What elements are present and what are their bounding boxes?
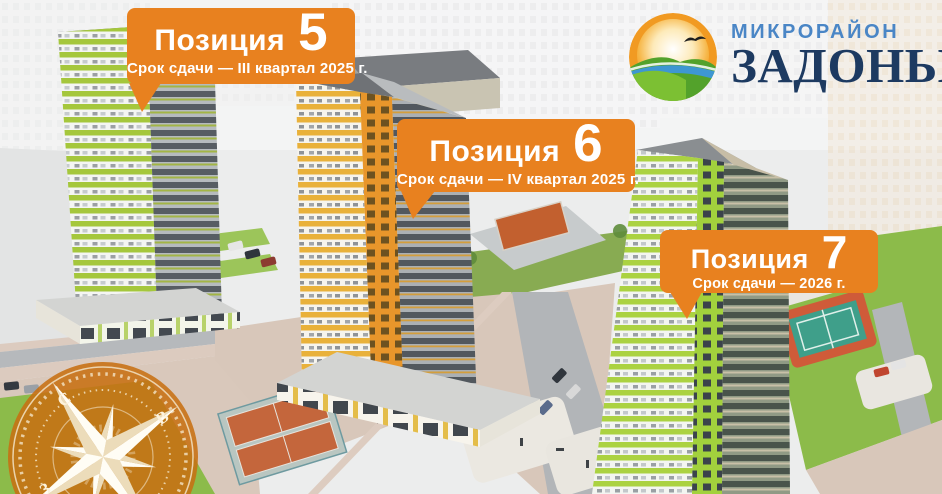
callout-position-6: Позиция 6 Срок сдачи — IV квартал 2025 г…	[397, 119, 635, 192]
callout-title: Позиция	[154, 26, 285, 56]
callout-position-5: Позиция 5 Срок сдачи — III квартал 2025 …	[127, 8, 355, 84]
callout-deadline: Срок сдачи — III квартал 2025 г.	[127, 60, 355, 77]
callout-pointer	[670, 292, 712, 320]
callout-number: 7	[822, 234, 848, 271]
callout-title: Позиция	[429, 137, 560, 167]
car	[4, 381, 20, 391]
callout-title: Позиция	[691, 246, 809, 273]
logo: МИКРОРАЙОН ЗАДОНЬЕ	[628, 12, 933, 112]
callout-number: 6	[573, 123, 602, 165]
callout-pointer	[129, 83, 169, 113]
callout-pointer	[401, 191, 441, 220]
promo-render: С В З Ю	[0, 0, 942, 494]
callout-deadline: Срок сдачи — IV квартал 2025 г.	[397, 171, 635, 188]
callout-deadline: Срок сдачи — 2026 г.	[660, 276, 878, 292]
logo-name: ЗАДОНЬЕ	[731, 43, 942, 90]
callout-position-7: Позиция 7 Срок сдачи — 2026 г.	[660, 230, 878, 293]
callout-number: 5	[298, 12, 327, 54]
sun-hills-river-emblem-icon	[628, 12, 718, 102]
